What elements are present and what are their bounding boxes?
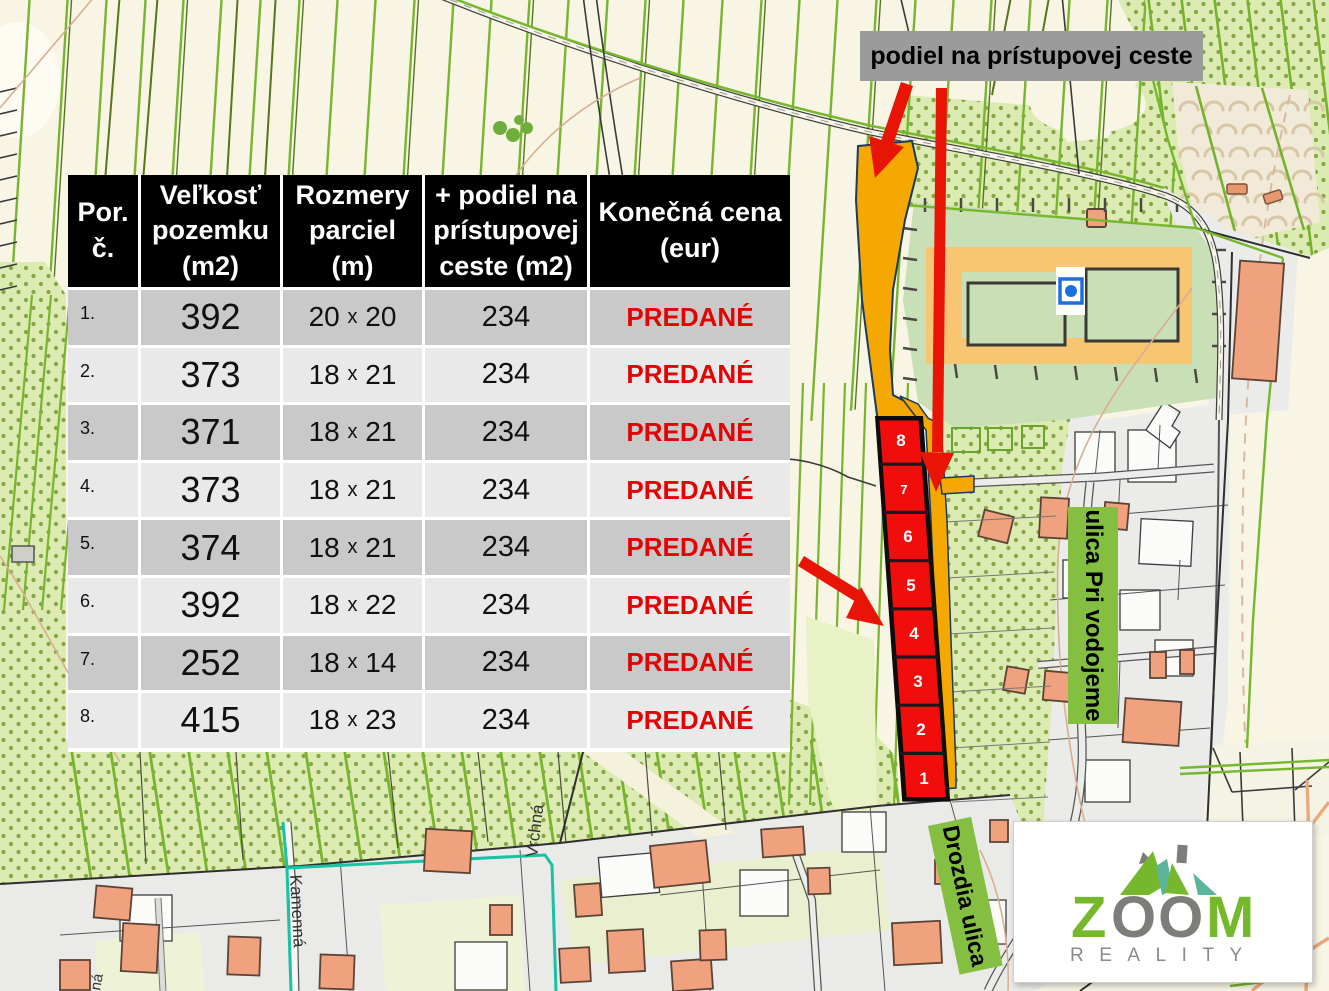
svg-text:REALITY: REALITY [1070,945,1258,966]
svg-text:2: 2 [916,720,925,739]
svg-text:7: 7 [900,482,907,497]
svg-text:OO: OO [1111,885,1205,950]
svg-text:5: 5 [906,576,915,595]
svg-text:6: 6 [903,527,912,546]
svg-text:3: 3 [913,672,922,691]
svg-text:4: 4 [909,624,919,643]
svg-text:Z: Z [1071,885,1106,950]
svg-text:M: M [1206,885,1254,950]
svg-text:Kamenná: Kamenná [286,874,309,948]
svg-text:8: 8 [896,431,905,450]
svg-text:1: 1 [919,769,928,788]
